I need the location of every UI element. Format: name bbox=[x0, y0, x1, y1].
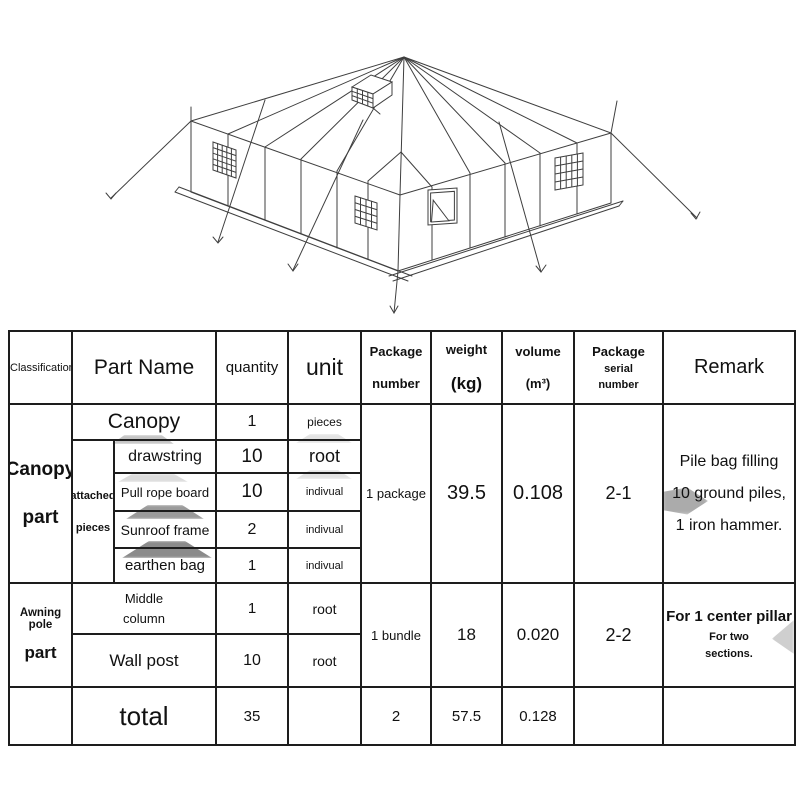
roof-vent-box bbox=[352, 75, 392, 114]
cell-qty-wall-post: 10 bbox=[216, 634, 288, 687]
cell-package-number-1: 1 package bbox=[361, 404, 431, 583]
remark1-line1: Pile bag filling bbox=[664, 446, 794, 478]
cell-remark-2: For 1 center pillar For two sections. bbox=[663, 583, 795, 687]
window-grid-right bbox=[555, 153, 583, 190]
tent-isometric-line-drawing bbox=[0, 0, 800, 328]
cell-qty-sunroof-frame: 2 bbox=[216, 511, 288, 548]
cell-total-package-number: 2 bbox=[361, 687, 431, 745]
cell-part-earthen-bag: earthen bag bbox=[114, 548, 216, 583]
cell-unit-wall-post: root bbox=[288, 634, 361, 687]
cell-classification-canopy-part: Canopy part bbox=[9, 404, 72, 583]
cell-total-classification-empty bbox=[9, 687, 72, 745]
header-weight-unit: (kg) bbox=[451, 374, 482, 394]
packing-list-table: Classification Part Name quantity unit P… bbox=[8, 330, 796, 746]
header-volume-unit: (m³) bbox=[526, 376, 551, 391]
header-weight: weight (kg) bbox=[431, 331, 502, 404]
cell-total-serial-empty bbox=[574, 687, 663, 745]
classification2-line2: part bbox=[24, 643, 56, 663]
row-total: total 35 2 57.5 0.128 bbox=[9, 687, 795, 745]
cell-remark-1: Pile bag filling 10 ground piles, 1 iron… bbox=[663, 404, 795, 583]
window-grid-left-far bbox=[213, 142, 236, 178]
header-volume: volume (m³) bbox=[502, 331, 574, 404]
header-row: Classification Part Name quantity unit P… bbox=[9, 331, 795, 404]
remark1-line2: 10 ground piles, bbox=[664, 478, 794, 510]
remark2-sub-line2: sections. bbox=[705, 646, 753, 663]
header-part-name: Part Name bbox=[72, 331, 216, 404]
classification-line2: part bbox=[23, 507, 59, 529]
header-remark: Remark bbox=[663, 331, 795, 404]
cell-volume-1: 0.108 bbox=[502, 404, 574, 583]
cell-total-unit-empty bbox=[288, 687, 361, 745]
cell-total-weight: 57.5 bbox=[431, 687, 502, 745]
cell-unit-earthen-bag: indivual bbox=[288, 548, 361, 583]
remark1-line3: 1 iron hammer. bbox=[664, 510, 794, 542]
tent-door bbox=[428, 188, 457, 225]
cell-part-drawstring: drawstring bbox=[114, 440, 216, 473]
cell-volume-2: 0.020 bbox=[502, 583, 574, 687]
classification-line1: Canopy bbox=[9, 459, 72, 481]
header-package-serial: Package serial number bbox=[574, 331, 663, 404]
attached-line1: attached bbox=[72, 490, 114, 502]
remark2-sub: For two sections. bbox=[705, 629, 753, 662]
cell-weight-2: 18 bbox=[431, 583, 502, 687]
cell-unit-sunroof-frame: indivual bbox=[288, 511, 361, 548]
cell-total-remark-empty bbox=[663, 687, 795, 745]
cell-serial-1: 2-1 bbox=[574, 404, 663, 583]
cell-classification-awning-pole: Awning pole part bbox=[9, 583, 72, 687]
remark2-sub-line1: For two bbox=[705, 629, 753, 646]
cell-qty-canopy: 1 bbox=[216, 404, 288, 440]
header-volume-line1: volume bbox=[515, 344, 561, 359]
header-package-number: Package number bbox=[361, 331, 431, 404]
header-classification: Classification bbox=[9, 331, 72, 404]
header-quantity: quantity bbox=[216, 331, 288, 404]
cell-attached-pieces: attached pieces bbox=[72, 440, 114, 583]
attached-line2: pieces bbox=[76, 522, 110, 534]
cell-unit-pull-rope-board: indivual bbox=[288, 473, 361, 511]
cell-serial-2: 2-2 bbox=[574, 583, 663, 687]
row-middle-column: Awning pole part Middle column 1 root 1 … bbox=[9, 583, 795, 634]
window-grid-left-near bbox=[355, 196, 377, 230]
cell-total-qty: 35 bbox=[216, 687, 288, 745]
header-weight-line1: weight bbox=[446, 342, 487, 357]
cell-qty-drawstring: 10 bbox=[216, 440, 288, 473]
header-unit: unit bbox=[288, 331, 361, 404]
middle-column-line2: column bbox=[73, 609, 215, 629]
remark2-main: For 1 center pillar bbox=[666, 608, 792, 625]
cell-part-pull-rope-board: Pull rope board bbox=[114, 473, 216, 511]
cell-qty-middle-column: 1 bbox=[216, 583, 288, 634]
header-package-number-line1: Package bbox=[370, 344, 423, 359]
middle-column-line1: Middle bbox=[73, 589, 215, 609]
cell-unit-drawstring: root bbox=[288, 440, 361, 473]
tent-roof-lines bbox=[191, 57, 611, 195]
cell-qty-pull-rope-board: 10 bbox=[216, 473, 288, 511]
header-package-number-line2: number bbox=[372, 376, 420, 391]
page: Classification Part Name quantity unit P… bbox=[0, 0, 800, 800]
cell-part-wall-post: Wall post bbox=[72, 634, 216, 687]
cell-part-canopy: Canopy bbox=[72, 404, 216, 440]
cell-unit-middle-column: root bbox=[288, 583, 361, 634]
cell-total-label: total bbox=[72, 687, 216, 745]
guy-ropes bbox=[106, 100, 700, 313]
header-serial-line2: serial bbox=[604, 363, 633, 375]
cell-qty-earthen-bag: 1 bbox=[216, 548, 288, 583]
cell-part-middle-column: Middle column bbox=[72, 583, 216, 634]
header-serial-line3: number bbox=[598, 379, 638, 391]
cell-unit-canopy: pieces bbox=[288, 404, 361, 440]
header-serial-line1: Package bbox=[592, 344, 645, 359]
row-canopy: Canopy part Canopy 1 pieces 1 package 39… bbox=[9, 404, 795, 440]
cell-total-volume: 0.128 bbox=[502, 687, 574, 745]
classification2-line1: Awning pole bbox=[10, 607, 71, 631]
cell-part-sunroof-frame: Sunroof frame bbox=[114, 511, 216, 548]
cell-weight-1: 39.5 bbox=[431, 404, 502, 583]
cell-package-number-2: 1 bundle bbox=[361, 583, 431, 687]
